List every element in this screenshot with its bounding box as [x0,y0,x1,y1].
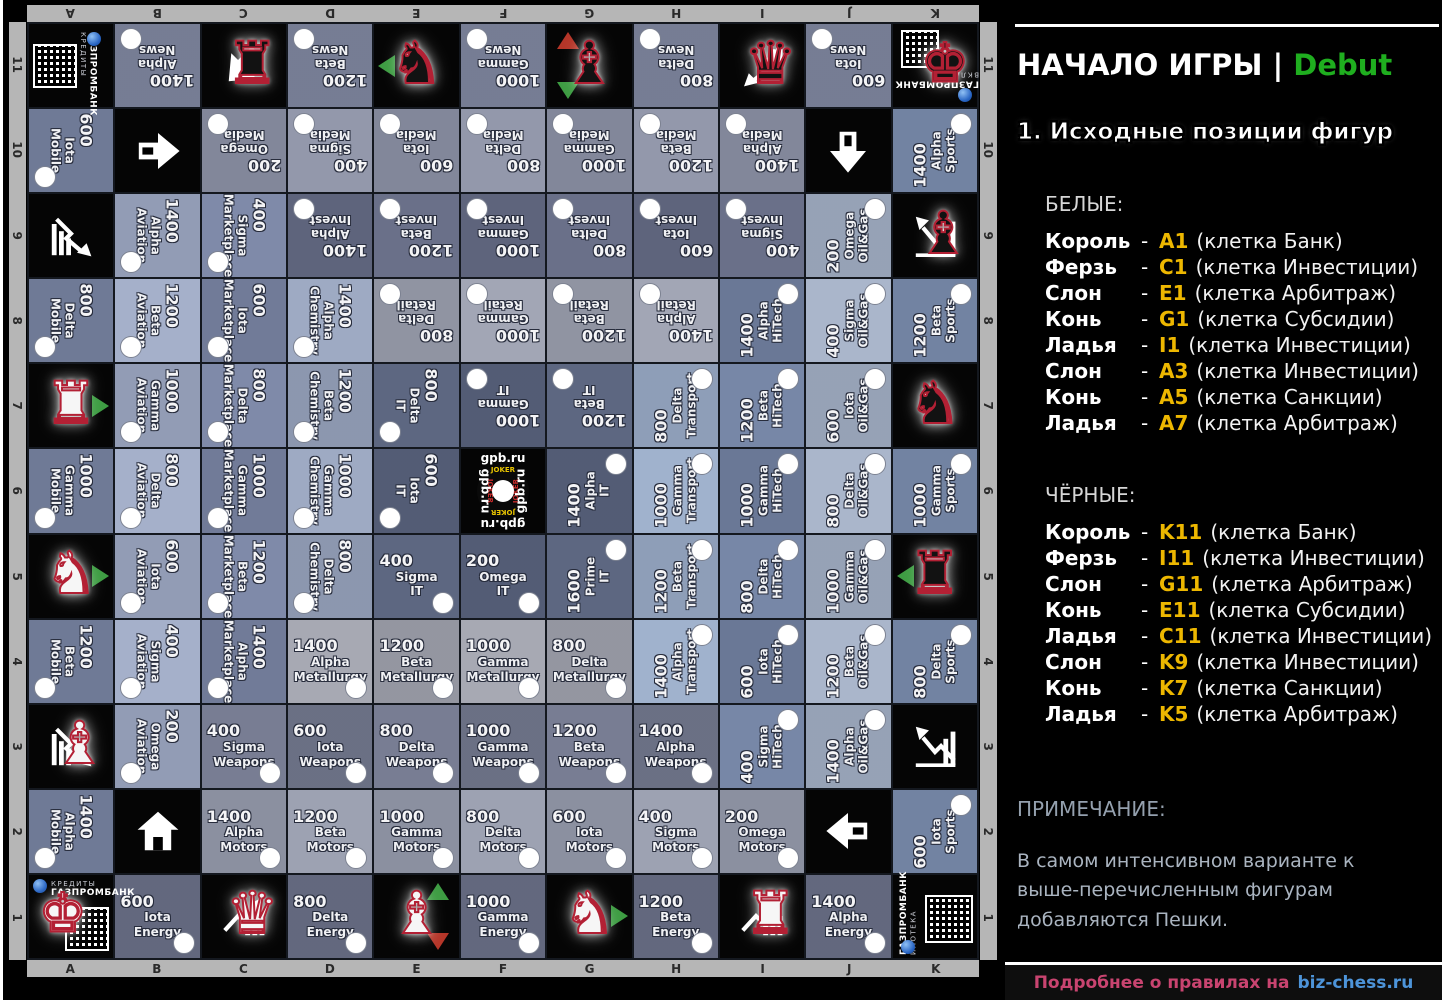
piece-position: C1 [1159,254,1188,280]
cell-company: Sigma [236,215,250,257]
piece-position: I11 [1159,545,1194,571]
cell-company: Invest [309,213,351,227]
cell-G10[interactable]: 1000GammaMedia [547,109,631,192]
cell-value: 400 [639,809,672,826]
white-knight-piece[interactable]: ♞ [563,885,615,943]
cell-company: Beta [315,57,346,71]
cell-value: 1200 [552,723,597,740]
token-dot [432,592,454,614]
cell-I3[interactable]: 400SigmaHiTech [720,705,804,788]
cell-G8[interactable]: 1200BetaRetail [547,279,631,362]
cell-company: IT [598,570,612,583]
piece-cell-type: (клетка Арбитраж) [1196,701,1397,727]
piece-name: Конь [1045,597,1141,623]
cell-value: 800 [379,723,412,740]
cell-H4[interactable]: 1400AlphaTransport [634,620,718,703]
white-knight-piece[interactable]: ♞ [45,544,97,602]
cell-company: Invest [396,213,438,227]
token-dot [605,539,627,561]
cell-C4[interactable]: 1400AlphaMarketplace [202,620,286,703]
cell-C3[interactable]: 400SigmaWeapons [202,705,286,788]
cell-H6[interactable]: 1000GammaTransport [634,449,718,532]
piece-position: A5 [1159,384,1188,410]
cell-company: Gamma [842,551,856,602]
piece-entry-G1: Конь-G1(клетка Субсидии) [1045,306,1437,332]
cell-B9[interactable]: 1400AlphaAviation [115,194,199,277]
cell-value: 400 [250,199,267,232]
cell-company: Gamma [477,312,528,326]
cell-J6[interactable]: 800DeltaOil&Gas [806,449,890,532]
cell-B4[interactable]: 400SigmaAviation [115,620,199,703]
token-dot [950,624,972,646]
cell-value: 400 [739,750,756,783]
white-rook-piece[interactable]: ♜ [45,374,97,432]
cell-F1[interactable]: 1000GammaEnergy [461,875,545,958]
token-dot [725,198,747,220]
piece-cell-type: (клетка Инвестиции) [1196,254,1419,280]
cell-value: 1000 [466,723,511,740]
cell-company: Delta [485,825,521,839]
cell-C5[interactable]: 1200BetaMarketplace [202,535,286,618]
cell-E3[interactable]: 800DeltaWeapons [374,705,458,788]
cell-H9[interactable]: 600IotaInvest [634,194,718,277]
piece-entry-K7: Конь-K7(клетка Санкции) [1045,675,1437,701]
white-rook-piece[interactable]: ♜ [745,885,797,943]
piece-cell-type: (клетка Санкции) [1196,384,1382,410]
cell-E6[interactable]: 600IotaIT [374,449,458,532]
cell-D11[interactable]: 1200BetaNews [288,24,372,107]
cell-B3[interactable]: 200OmegaAviation [115,705,199,788]
cell-company: HiTech [770,724,784,769]
cell-H5[interactable]: 1200BetaTransport [634,535,718,618]
cell-company: Delta [571,227,607,241]
cell-value: 1400 [755,157,800,174]
cell-J11[interactable]: 600IotaNews [806,24,890,107]
cell-company: Iota [576,825,603,839]
token-dot [207,336,229,358]
cell-F11[interactable]: 1000GammaNews [461,24,545,107]
cell-H1[interactable]: 1200BetaEnergy [634,875,718,958]
cell-H11[interactable]: 800DeltaNews [634,24,718,107]
cell-company: Retail [397,298,436,312]
cell-C9[interactable]: 400SigmaMarketplace [202,194,286,277]
cell-I4[interactable]: 600IotaHiTech [720,620,804,703]
file-labels-bottom: ABCDEFGHIJK [27,960,979,977]
cell-H8[interactable]: 1400AlphaRetail [634,279,718,362]
qr-code [925,895,973,943]
cell-D6[interactable]: 1000GammaChemistry [288,449,372,532]
file-label-K: K [892,5,979,22]
cell-C2[interactable]: 1400AlphaMotors [202,790,286,873]
cell-value: 800 [680,72,713,89]
black-rook-piece[interactable]: ♜ [909,544,961,602]
cell-I1[interactable]: ♜ [720,875,804,958]
cell-F4[interactable]: 1000GammaMetallurgy [461,620,545,703]
cell-E2[interactable]: 1000GammaMotors [374,790,458,873]
cell-F9[interactable]: 1000GammaInvest [461,194,545,277]
cell-I2[interactable]: 200OmegaMotors [720,790,804,873]
token-dot [777,624,799,646]
cell-value: 1200 [639,894,684,911]
cell-value: 800 [826,495,843,528]
cell-value: 1600 [567,569,584,614]
cell-A11[interactable]: ГАЗПРОМБАНККРЕДИТЫ [29,24,113,107]
piece-cell-type: (клетка Арбитраж) [1195,280,1396,306]
cell-value: 1000 [250,454,267,499]
token-dot [864,283,886,305]
piece-position: G1 [1159,306,1189,332]
piece-cell-type: (клетка Инвестиции) [1210,623,1433,649]
cell-F5[interactable]: 200OmegaIT [461,535,545,618]
cell-value: 800 [739,580,756,613]
cell-E7[interactable]: 800DeltaIT [374,364,458,447]
cell-company: Delta [399,740,435,754]
cell-C10[interactable]: 200OmegaMedia [202,109,286,192]
cell-value: 400 [164,624,181,657]
cell-company: Invest [568,213,610,227]
token-dot [864,932,886,954]
cell-J8[interactable]: 400SigmaOil&Gas [806,279,890,362]
token-dot [34,507,56,529]
cell-company: News [658,43,694,57]
cell-value: 600 [420,157,453,174]
cell-company: Alpha [149,216,163,255]
cell-company: Iota [835,57,862,71]
cell-company: Omega [738,825,786,839]
token-dot [379,507,401,529]
cell-company: Iota [317,740,344,754]
cell-F6[interactable]: gpb.rugpb.rugpb.rugpb.ruJOKERJOKERJOKERJ… [461,449,545,532]
file-label-E: E [373,960,460,977]
cell-company: Sigma [309,142,351,156]
piece-entry-I11: Ферзь-I11(клетка Инвестиции) [1045,545,1437,571]
token-dot [864,368,886,390]
cell-E8[interactable]: 800DeltaRetail [374,279,458,362]
cell-K9[interactable]: ♝ [893,194,977,277]
game-board: ABCDEFGHIJK ABCDEFGHIJK 1110987654321 11… [3,0,1005,1000]
cell-F8[interactable]: 1000GammaRetail [461,279,545,362]
cell-K1[interactable]: ГАЗПРОМБАНКИПОТЕКА [893,875,977,958]
cell-G5[interactable]: 1600PrimeIT [547,535,631,618]
cell-J1[interactable]: 1400AlphaEnergy [806,875,890,958]
dash: - [1141,571,1159,597]
cell-value: 1400 [739,313,756,358]
white-bishop-piece[interactable]: ♝ [54,714,106,772]
cell-company: Beta [401,227,432,241]
cell-company: Beta [574,312,605,326]
cell-company: IT [583,383,596,397]
token-dot [864,453,886,475]
cell-D2[interactable]: 1200BetaMotors [288,790,372,873]
black-bishop-piece[interactable]: ♝ [563,34,615,92]
gpb-ru-label: gpb.ru [478,469,492,514]
cell-K11[interactable]: ГАЗПРОМБАНКВКЛАДЫ♚ [893,24,977,107]
cell-company: Delta [149,473,163,509]
cell-D8[interactable]: 1400AlphaChemistry [288,279,372,362]
cell-company: Iota [403,142,430,156]
cell-J9[interactable]: 200OmegaOil&Gas [806,194,890,277]
piece-position: G11 [1159,571,1203,597]
file-label-C: C [200,960,287,977]
token-dot [639,283,661,305]
file-label-A: A [27,5,114,22]
cell-F10[interactable]: 800DeltaMedia [461,109,545,192]
piece-name: Ладья [1045,410,1141,436]
cell-company: Iota [929,818,943,845]
file-label-D: D [287,960,374,977]
cell-value: 1000 [496,327,541,344]
cell-J10[interactable] [806,109,890,192]
cell-company: Beta [149,305,163,336]
piece-cell-type: (клетка Инвестиции) [1196,649,1419,675]
cell-J2[interactable] [806,790,890,873]
cell-company: Prime [583,556,597,595]
cell-company: Gamma [929,465,943,516]
token-dot [432,677,454,699]
black-king-piece[interactable]: ♚ [921,36,969,90]
rank-label-2: 2 [0,824,60,841]
cell-value: 400 [334,157,367,174]
cell-value: 1400 [250,624,267,669]
piece-name: Слон [1045,571,1141,597]
cell-E9[interactable]: 1200BetaInvest [374,194,458,277]
cell-company: Omega [479,570,527,584]
file-label-I: I [719,5,806,22]
cell-J4[interactable]: 1200BetaOil&Gas [806,620,890,703]
cell-H10[interactable]: 1200BetaMedia [634,109,718,192]
cell-company: Alpha [236,642,250,681]
token-dot [777,539,799,561]
cell-company: Media [655,128,696,142]
cell-company: Alpha [138,57,177,71]
cell-value: 1000 [912,484,929,529]
piece-position: K11 [1159,519,1202,545]
cell-C11[interactable]: ♜ [202,24,286,107]
cell-value: 800 [336,539,353,572]
cell-company: HiTech [770,469,784,514]
title-accent: Debut [1293,48,1392,82]
cell-I6[interactable]: 1000GammaHiTech [720,449,804,532]
white-pieces-list: Король-A1(клетка Банк)Ферзь-C1(клетка Ин… [1045,228,1437,436]
white-bishop-piece[interactable]: ♝ [391,885,443,943]
rank-labels-right: 1110987654321 [980,22,997,960]
cell-B2[interactable] [115,790,199,873]
cell-company: Gamma [477,910,528,924]
cell-J7[interactable]: 600IotaOil&Gas [806,364,890,447]
file-label-J: J [806,5,893,22]
cell-G11[interactable]: ♝ [547,24,631,107]
piece-name: Конь [1045,675,1141,701]
piece-position: A7 [1159,410,1188,436]
cell-value: 800 [77,284,94,317]
cell-company: Gamma [63,465,77,516]
cell-value: 600 [250,284,267,317]
footer-text: Подробнее о правилах на [1034,973,1290,993]
cell-F7[interactable]: 1000GammaIT [461,364,545,447]
token-dot [432,762,454,784]
cell-J5[interactable]: 1000GammaOil&Gas [806,535,890,618]
file-label-F: F [460,5,547,22]
cell-E10[interactable]: 600IotaMedia [374,109,458,192]
token-dot [34,166,56,188]
cell-B10[interactable] [115,109,199,192]
cell-D4[interactable]: 1400AlphaMetallurgy [288,620,372,703]
cell-value: 800 [593,242,626,259]
cell-B5[interactable]: 600IotaAviation [115,535,199,618]
cell-company: Gamma [149,380,163,431]
cell-E4[interactable]: 1200BetaMetallurgy [374,620,458,703]
cell-I5[interactable]: 800DeltaHiTech [720,535,804,618]
cell-value: 600 [293,723,326,740]
cell-A1[interactable]: КРЕДИТЫГАЗПРОМБАНК♚ [29,875,113,958]
token-dot [639,28,661,50]
cell-company: Beta [236,561,250,592]
cell-H3[interactable]: 1400AlphaWeapons [634,705,718,788]
biz-chess-link[interactable]: biz-chess.ru [1297,973,1413,993]
token-dot [466,198,488,220]
black-knight-piece[interactable]: ♞ [909,374,961,432]
piece-entry-G11: Слон-G11(клетка Арбитраж) [1045,571,1437,597]
cell-I11[interactable]: ♛ [720,24,804,107]
token-dot [293,507,315,529]
cell-F2[interactable]: 800DeltaMotors [461,790,545,873]
cell-company: Beta [660,910,691,924]
piece-cell-type: (клетка Санкции) [1196,675,1382,701]
cell-C6[interactable]: 1000GammaMarketplace [202,449,286,532]
file-label-J: J [806,960,893,977]
cell-company: Delta [408,388,422,424]
cell-H7[interactable]: 800DeltaTransport [634,364,718,447]
cell-company: Delta [399,312,435,326]
token-dot [207,507,229,529]
cell-company: Media [483,128,524,142]
cell-G2[interactable]: 600IotaMotors [547,790,631,873]
cell-B11[interactable]: 1400AlphaNews [115,24,199,107]
black-bishop-piece[interactable]: ♝ [917,204,969,262]
cell-D7[interactable]: 1200BetaChemistry [288,364,372,447]
cell-company: Beta [574,398,605,412]
dash: - [1141,623,1159,649]
cell-I8[interactable]: 1400AlphaHiTech [720,279,804,362]
cell-J3[interactable]: 1400AlphaOil&Gas [806,705,890,788]
cell-I9[interactable]: 400SigmaInvest [720,194,804,277]
cell-value: 1200 [293,809,338,826]
token-dot [605,453,627,475]
cell-B7[interactable]: 1000GammaAviation [115,364,199,447]
cell-company: Media [569,128,610,142]
piece-name: Ферзь [1045,254,1141,280]
cell-C8[interactable]: 600IotaMarketplace [202,279,286,362]
cell-H2[interactable]: 400SigmaMotors [634,790,718,873]
token-dot [120,507,142,529]
token-dot [120,592,142,614]
cell-company: Retail [656,298,695,312]
cell-company: Sigma [741,227,783,241]
cell-G3[interactable]: 1200BetaWeapons [547,705,631,788]
cell-D5[interactable]: 800DeltaChemistry [288,535,372,618]
cell-value: 1400 [668,327,713,344]
token-dot [691,539,713,561]
cell-company: Iota [149,563,163,590]
piece-position: A3 [1159,358,1188,384]
cell-C1[interactable]: ♛ [202,875,286,958]
cell-company: Gamma [477,57,528,71]
cell-company: Media [310,128,351,142]
cell-company: Invest [741,213,783,227]
piece-entry-C11: Ладья-C11(клетка Инвестиции) [1045,623,1437,649]
cell-D9[interactable]: 1400AlphaInvest [288,194,372,277]
cell-B8[interactable]: 1200BetaAviation [115,279,199,362]
cell-company: HiTech [770,554,784,599]
cell-E1[interactable]: ♝ [374,875,458,958]
white-queen-piece[interactable]: ♛ [226,885,278,943]
cell-G6[interactable]: 1400AlphaIT [547,449,631,532]
cell-value: 1400 [653,654,670,699]
cell-value: 1200 [250,539,267,584]
cell-E5[interactable]: 400SigmaIT [374,535,458,618]
cell-D10[interactable]: 400SigmaMedia [288,109,372,192]
white-king-piece[interactable]: ♚ [39,887,87,941]
cell-company: Invest [482,213,524,227]
cell-F3[interactable]: 1000GammaWeapons [461,705,545,788]
piece-cell-type: (клетка Инвестиции) [1196,358,1419,384]
cell-B6[interactable]: 800DeltaAviation [115,449,199,532]
cell-value: 1000 [739,484,756,529]
black-queen-piece[interactable]: ♛ [745,34,797,92]
cell-company: Iota [408,478,422,505]
chart-ul-icon [911,722,959,770]
cell-D3[interactable]: 600IotaWeapons [288,705,372,788]
token-dot [864,539,886,561]
cell-G7[interactable]: 1200BetaIT [547,364,631,447]
file-label-D: D [287,5,374,22]
cell-G9[interactable]: 800DeltaInvest [547,194,631,277]
cell-value: 600 [739,665,756,698]
cell-company: Beta [574,740,605,754]
cell-C7[interactable]: 800DeltaMarketplace [202,364,286,447]
black-knight-piece[interactable]: ♞ [391,34,443,92]
piece-name: Конь [1045,306,1141,332]
token-dot [120,677,142,699]
token-dot [639,113,661,135]
cell-I10[interactable]: 1400AlphaMedia [720,109,804,192]
qr-code [33,44,77,88]
cell-company: HiTech [770,299,784,344]
arrow-down-icon [824,127,872,175]
token-dot [777,709,799,731]
page-title: НАЧАЛО ИГРЫ | Debut [1017,48,1437,82]
cell-value: 200 [725,809,758,826]
piece-entry-I1: Ладья-I1(клетка Инвестиции) [1045,332,1437,358]
cell-G4[interactable]: 800DeltaMetallurgy [547,620,631,703]
cell-company: News [830,43,866,57]
cell-value: 800 [912,665,929,698]
cell-company: Alpha [311,655,350,669]
piece-cell-type: (клетка Субсидии) [1197,306,1394,332]
file-label-E: E [373,5,460,22]
dash: - [1141,701,1159,727]
cell-G1[interactable]: ♞ [547,875,631,958]
cell-E11[interactable]: ♞ [374,24,458,107]
cell-value: 1000 [379,809,424,826]
piece-entry-A1: Король-A1(клетка Банк) [1045,228,1437,254]
cell-value: 1200 [739,399,756,444]
cell-D1[interactable]: 800DeltaEnergy [288,875,372,958]
black-rook-piece[interactable]: ♜ [226,34,278,92]
dash: - [1141,384,1159,410]
token-dot [691,847,713,869]
cell-I7[interactable]: 1200BetaHiTech [720,364,804,447]
